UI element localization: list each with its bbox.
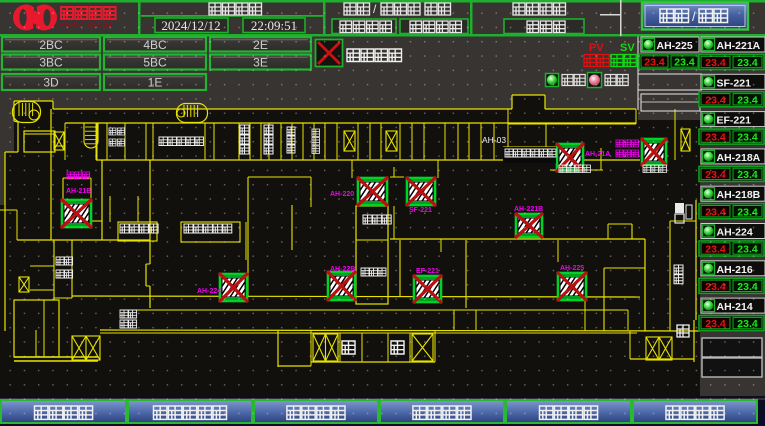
- svg-text:AH-22B: AH-22B: [330, 266, 355, 273]
- svg-text:23.4: 23.4: [737, 169, 758, 181]
- svg-text:AH-218A: AH-218A: [717, 152, 761, 164]
- svg-text:5BC: 5BC: [143, 56, 167, 70]
- svg-text:23.4: 23.4: [705, 318, 726, 330]
- svg-text:4BC: 4BC: [143, 38, 167, 52]
- svg-text:AH-218B: AH-218B: [717, 189, 761, 201]
- svg-text:SF-221: SF-221: [717, 77, 752, 89]
- svg-text:23.4: 23.4: [705, 206, 726, 218]
- svg-text:23.4: 23.4: [737, 281, 758, 293]
- svg-text:2BC: 2BC: [39, 38, 63, 52]
- svg-text:23.4: 23.4: [737, 57, 758, 69]
- svg-text:23.4: 23.4: [705, 132, 726, 144]
- svg-text:23.4: 23.4: [737, 132, 758, 144]
- svg-text:2E: 2E: [253, 38, 268, 52]
- svg-text:22:09:51: 22:09:51: [251, 18, 297, 33]
- svg-text:AH-214: AH-214: [717, 301, 753, 313]
- svg-text:3D: 3D: [43, 76, 59, 90]
- svg-text:23.4: 23.4: [674, 57, 695, 69]
- svg-text:23.4: 23.4: [737, 244, 758, 256]
- svg-text:AH-225: AH-225: [657, 40, 693, 52]
- svg-text:AH-221B: AH-221B: [514, 206, 543, 213]
- svg-text:AH-21B: AH-21B: [66, 188, 91, 195]
- svg-text:23.4: 23.4: [737, 318, 758, 330]
- svg-text:PV: PV: [589, 42, 604, 54]
- svg-text:AH-224: AH-224: [717, 227, 753, 239]
- svg-text:23.4: 23.4: [705, 281, 726, 293]
- svg-text:SV: SV: [620, 42, 635, 54]
- svg-text:EF-221: EF-221: [416, 268, 439, 275]
- svg-text:23.4: 23.4: [705, 57, 726, 69]
- svg-text:SF-221: SF-221: [409, 207, 432, 214]
- svg-text:/: /: [373, 2, 377, 16]
- svg-text:23.4: 23.4: [705, 169, 726, 181]
- svg-text:2024/12/12: 2024/12/12: [161, 18, 220, 33]
- svg-text:/: /: [692, 9, 696, 24]
- svg-text:23.4: 23.4: [737, 206, 758, 218]
- svg-text:23.4: 23.4: [705, 244, 726, 256]
- svg-text:3BC: 3BC: [39, 56, 63, 70]
- svg-text:AH-220: AH-220: [330, 191, 354, 198]
- svg-text:AH-03: AH-03: [482, 135, 506, 145]
- svg-text:23.4: 23.4: [737, 94, 758, 106]
- svg-text:AH-216: AH-216: [717, 264, 753, 276]
- svg-text:23.4: 23.4: [705, 94, 726, 106]
- svg-text:23.4: 23.4: [644, 57, 665, 69]
- svg-text:1E: 1E: [148, 76, 163, 90]
- svg-text:AH-224: AH-224: [197, 288, 221, 295]
- svg-text:EF-221: EF-221: [717, 115, 752, 127]
- svg-text:HUNYA FOODS: HUNYA FOODS: [60, 22, 113, 29]
- svg-text:AH-221A: AH-221A: [717, 40, 761, 52]
- svg-text:3E: 3E: [253, 56, 268, 70]
